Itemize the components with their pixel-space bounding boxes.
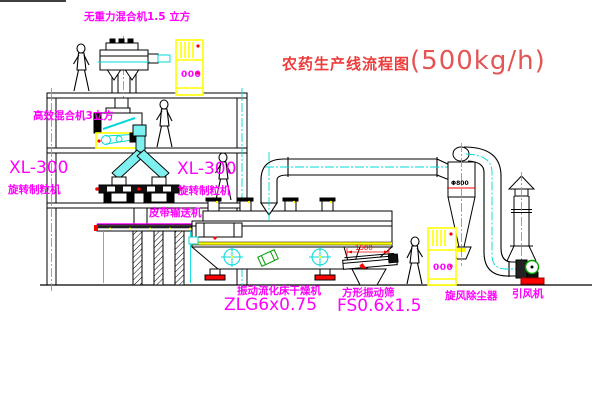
title-chinese: 农药生产线流程图 [282, 53, 410, 74]
worker-figure [407, 237, 423, 284]
label-gravity-mixer: 无重力混合机1.5 立方 [84, 12, 190, 23]
label-granulator-model-left: XL-300 [9, 160, 68, 177]
rotary-granulator-right [139, 177, 179, 202]
control-cabinet-bottom: 000 [428, 228, 456, 285]
label-sieve-model: FS0.6x1.5 [337, 298, 421, 315]
label-cyclone: 旋风除尘器 [445, 291, 498, 302]
conveyor-leg [133, 231, 142, 285]
dryer-hood [203, 211, 392, 221]
pesticide-process-flow-diagram: 000 [0, 0, 600, 403]
induced-draft-fan [516, 260, 544, 284]
mixer-outlet [133, 125, 146, 136]
worker-figure [74, 44, 90, 91]
label-fan: 引风机 [512, 289, 544, 300]
indicator-light [97, 139, 100, 142]
label-granulator-right: 旋转制粒机 [178, 186, 231, 197]
control-cabinet-top: 000 [176, 40, 203, 95]
label-high-eff-mixer: 高效混合机3立方 [33, 111, 114, 122]
panel-symbol: 000 [433, 263, 453, 273]
panel-symbol: 000 [181, 70, 201, 80]
indicator-light [449, 232, 452, 235]
gravity-free-mixer [98, 39, 170, 114]
sieve-dimension: 1500 [355, 244, 373, 252]
label-granulator-model-right: XL-300 [177, 161, 236, 178]
exhaust-stack [507, 172, 536, 265]
label-dryer-model: ZLG6x0.75 [224, 297, 317, 314]
indicator-light [196, 44, 199, 47]
conveyor-leg [154, 231, 163, 285]
worker-figure [157, 100, 173, 147]
title-capacity: (500kg/h) [410, 46, 546, 76]
diagram-title: 农药生产线流程图(500kg/h) [282, 46, 546, 76]
sieve-base [352, 269, 386, 285]
label-granulator-left: 旋转制粒机 [8, 185, 61, 196]
rotary-granulator-left [99, 177, 139, 202]
granulator-discharge-duct [134, 208, 147, 225]
label-belt-conveyor: 皮带输送机 [149, 208, 202, 219]
cyclone-dimension: Φ800 [451, 180, 469, 187]
conveyor-leg [175, 231, 184, 285]
